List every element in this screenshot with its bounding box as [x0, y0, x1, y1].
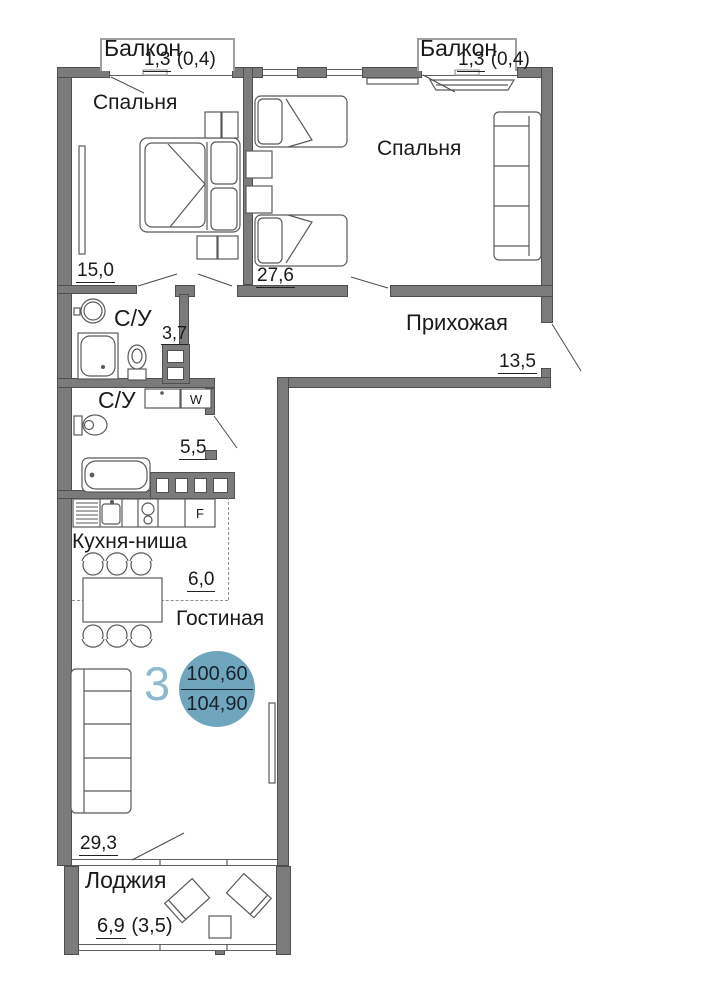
round-sink [74, 299, 105, 323]
area-note: (0,4) [177, 49, 216, 70]
kitchen-sink [102, 500, 120, 524]
sofa-living [71, 669, 131, 813]
mirror [79, 146, 85, 254]
room-label-kitchen: Кухня-ниша [72, 531, 187, 553]
dining-table [83, 578, 162, 622]
toilet [128, 345, 146, 380]
door-bedroom1 [198, 274, 232, 286]
loggia-armchair-right [226, 874, 271, 918]
floorplan-canvas: Балкон 1,3 (0,4) Балкон 1,3 (0,4) Спальн… [0, 0, 707, 1000]
area-balcony-left: 1,3 (0,4) [143, 50, 216, 70]
area-living: 29,3 [79, 834, 118, 854]
area-loggia: 6,9 (3,5) [96, 916, 173, 937]
double-bed [140, 138, 240, 232]
toilet [74, 415, 107, 435]
area-bedroom-right: 27,6 [256, 266, 295, 286]
loggia-table [209, 916, 231, 938]
area-total-value: 100,60 [181, 660, 253, 690]
apartment-rooms-count: 3 [144, 656, 170, 711]
nightstand [246, 151, 272, 213]
area-note: (0,4) [491, 49, 530, 70]
area-balcony-right: 1,3 (0,4) [457, 50, 530, 70]
stove-burners [142, 503, 154, 524]
door-bathroom2 [214, 416, 237, 448]
bathtub [82, 458, 150, 492]
fridge-label: F [185, 506, 215, 521]
area-kitchen: 6,0 [187, 570, 215, 590]
door-bedroom2 [351, 277, 388, 288]
radiator-living [269, 703, 275, 783]
room-label-bedroom-left: Спальня [93, 92, 177, 114]
apartment-area-badge: 100,60 104,90 [179, 651, 255, 727]
area-hallway: 13,5 [498, 352, 537, 372]
room-label-hallway: Прихожая [406, 311, 508, 334]
area-bathroom-lower: 5,5 [179, 438, 207, 458]
area-value: 1,3 [143, 49, 171, 72]
area-note: (3,5) [131, 915, 172, 937]
area-value: 6,9 [96, 915, 126, 939]
vanity-sink [145, 389, 180, 408]
room-label-bathroom-lower: С/У [98, 388, 136, 412]
door-entrance [552, 324, 581, 371]
door-ensuite [138, 274, 177, 286]
radiator [367, 78, 418, 84]
single-bed-top [255, 96, 347, 147]
area-value: 1,3 [457, 49, 485, 72]
sofa-bedroom2 [494, 112, 541, 260]
room-label-loggia: Лоджия [85, 868, 167, 892]
door-loggia [132, 833, 184, 860]
room-label-bathroom-upper: С/У [114, 306, 152, 330]
single-bed-bottom [255, 215, 347, 266]
area-bedroom-left: 15,0 [76, 261, 115, 281]
area-bathroom-upper: 3,7 [161, 324, 188, 343]
shower-tray [78, 333, 118, 379]
room-label-bedroom-right: Спальня [377, 138, 461, 160]
room-label-living: Гостиная [176, 608, 264, 630]
area-full-value: 104,90 [181, 690, 253, 719]
washer-label: W [181, 392, 211, 407]
